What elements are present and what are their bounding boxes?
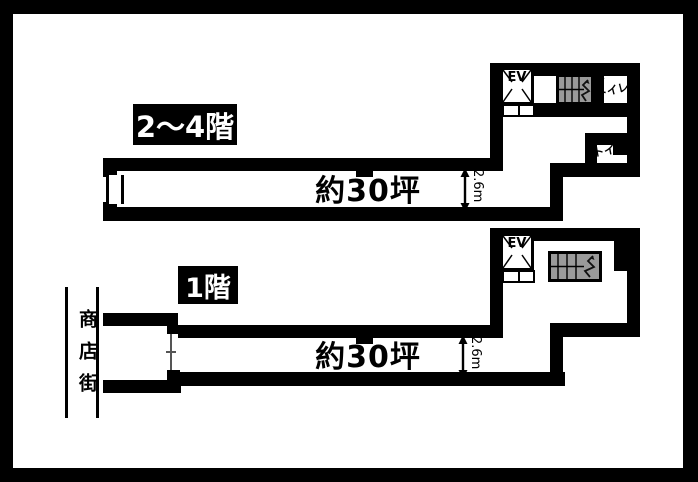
upper-floor-label: 2〜4階 <box>136 104 234 146</box>
lower-elevator-door-sill <box>502 270 535 283</box>
upper-section-bottom-wall <box>550 163 640 177</box>
lower-elevator-label: EV <box>500 237 534 250</box>
lower-floor-label: 1階 <box>185 266 231 305</box>
upper-window-symbol <box>106 175 124 204</box>
upper-elevator: EV <box>500 67 534 105</box>
upper-staircase <box>556 74 594 105</box>
lower-floor-label-box: 1階 <box>178 266 238 304</box>
street-line-left <box>65 287 68 418</box>
lower-room-right-wall <box>627 228 640 336</box>
lower-room-lower-right-wall <box>550 323 563 386</box>
lower-staircase <box>548 251 602 282</box>
street-label: 商店街 <box>70 296 96 418</box>
upper-room-right-wall <box>627 63 640 171</box>
lower-ceiling-height-label: 2.6m <box>469 336 482 378</box>
upper-ceiling-height-label: 2.6m <box>471 169 484 211</box>
lower-section-bottom-wall <box>550 323 640 337</box>
upper-corridor-top-wall <box>103 158 492 171</box>
upper-area-label: 約30坪 <box>303 171 433 204</box>
lower-entry-door-tick <box>166 351 176 353</box>
lower-elevator: EV <box>500 233 534 271</box>
upper-floor-label-box: 2〜4階 <box>133 104 237 145</box>
lower-entry-stub-top <box>167 313 178 334</box>
staircase-icon <box>548 251 602 282</box>
lower-room-topright-stub-wall <box>614 241 627 271</box>
staircase-icon <box>556 74 594 105</box>
floorplan-image: 2〜4階 EV <box>0 0 698 482</box>
lower-area-label: 約30坪 <box>303 337 433 370</box>
upper-elevator-label: EV <box>500 71 534 84</box>
upper-room-lower-right-wall <box>550 163 563 221</box>
upper-left-end-wall-bottom <box>103 202 117 221</box>
upper-elevator-door-sill <box>502 104 535 117</box>
